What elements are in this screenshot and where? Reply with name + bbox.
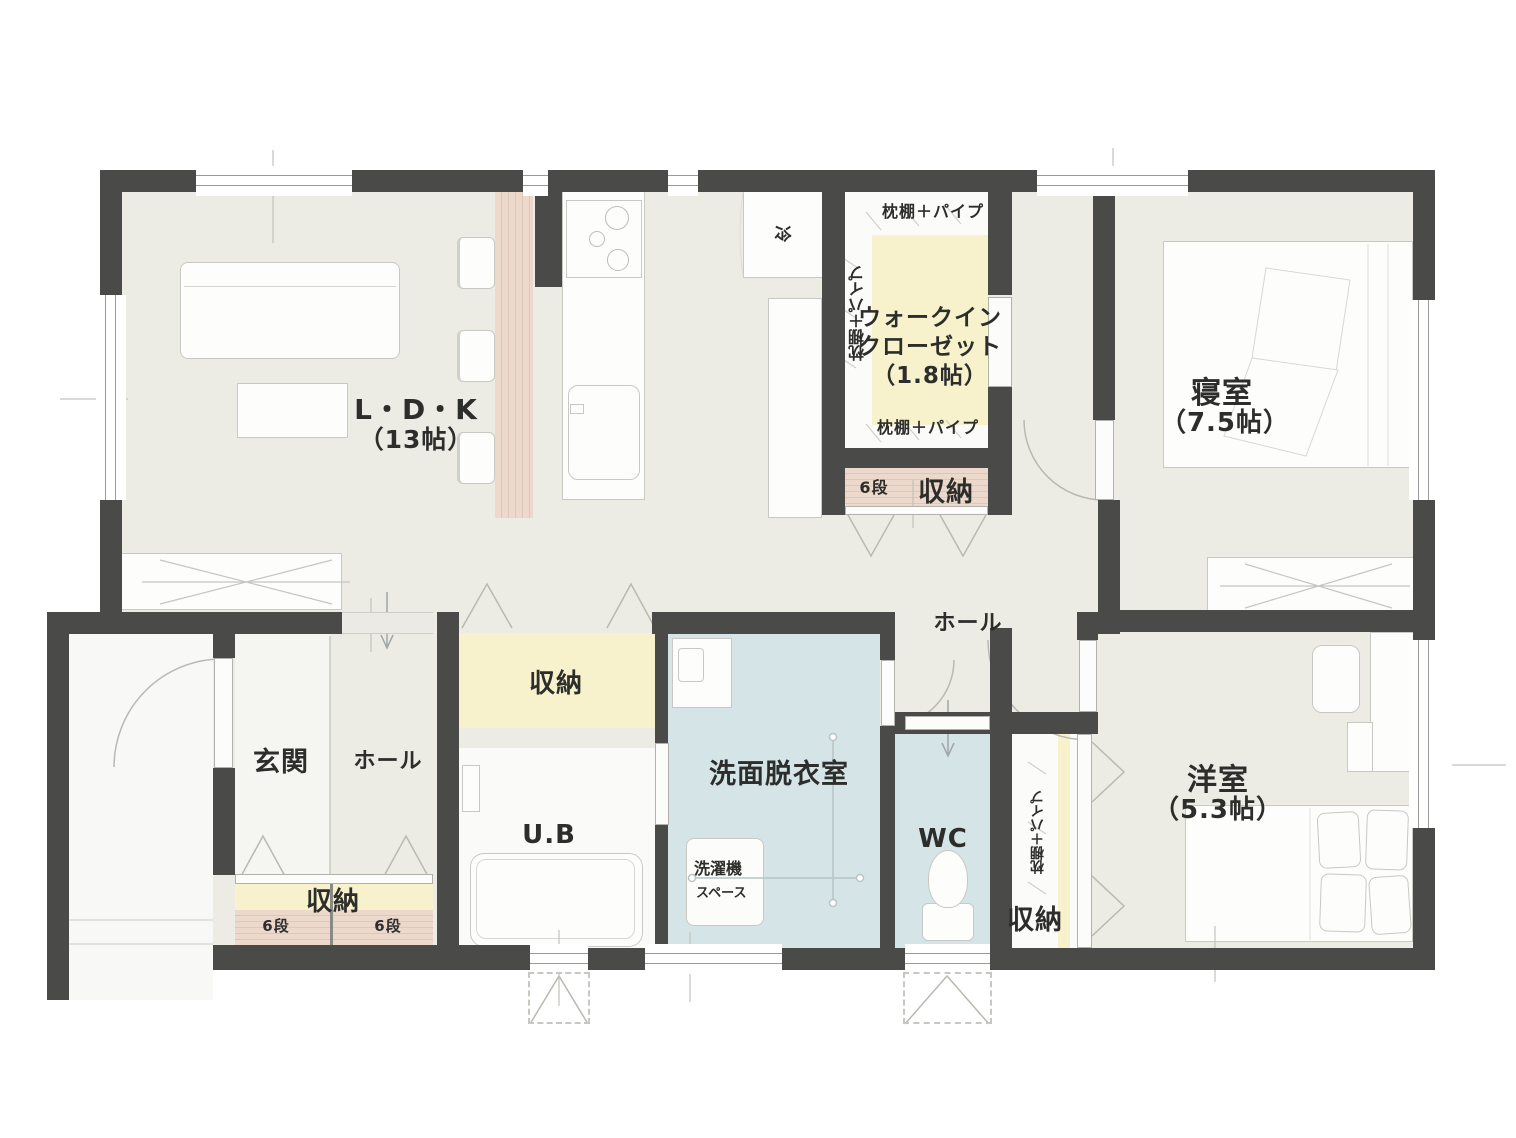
tv-board: [120, 553, 342, 610]
kitchen-sink: [568, 385, 640, 480]
wall: [47, 612, 342, 634]
wall: [437, 612, 459, 945]
wic-lower-storage-label: 収納: [918, 470, 974, 509]
wall-wic-right: [988, 170, 1012, 295]
room-size-ldk: （13帖）: [359, 420, 474, 456]
floor-plan: L・D・K （13帖） 寝室 （7.5帖） 洋室 （5.3帖） ウォークイン ク…: [0, 0, 1516, 1138]
window: [1409, 640, 1439, 828]
dining-table: [237, 383, 348, 438]
window: [196, 166, 352, 196]
western-closet-label: 収納: [1007, 898, 1063, 937]
laundry-space-label-line1: 洗濯機: [694, 855, 742, 879]
stove-burner: [607, 249, 629, 271]
wic-shelf-bottom-label: 枕棚＋パイプ: [877, 414, 979, 438]
stove-burner: [605, 206, 629, 230]
washroom-door: [881, 660, 895, 726]
room-label-entrance-hall: ホール: [353, 743, 422, 775]
wall: [655, 634, 668, 743]
wall-room-divider: [1098, 610, 1413, 632]
bed-blanket: [1368, 875, 1412, 936]
wall: [782, 948, 905, 970]
laundry-space-label-line2: スペース: [696, 882, 746, 901]
wall: [1413, 500, 1435, 640]
entrance-storage-steps-right: 6段: [374, 915, 401, 936]
wall: [1077, 712, 1098, 734]
wall: [880, 634, 895, 660]
window: [96, 295, 126, 500]
western-room-door: [1079, 640, 1097, 712]
ldk-hall-opening: [342, 612, 433, 634]
wic-shelf-top-label: 枕棚＋パイプ: [882, 198, 984, 222]
wic-shelf-left-label: 枕棚＋パイプ: [846, 265, 870, 361]
wall: [352, 170, 523, 192]
wall: [822, 448, 1012, 468]
wall-washroom-top: [652, 612, 895, 634]
fridge-label: 冷: [772, 226, 797, 244]
wall: [1413, 170, 1435, 300]
entrance-storage-label: 収納: [306, 881, 360, 918]
bed-blanket: [1319, 873, 1367, 933]
counter-stool: [457, 237, 495, 289]
wall: [1188, 170, 1435, 192]
window: [905, 944, 990, 974]
wall-bedroom-west: [1093, 192, 1115, 420]
western-side-shelf: [1347, 722, 1373, 772]
wall: [548, 170, 668, 192]
window: [1037, 166, 1188, 196]
entrance-door: [214, 658, 233, 768]
western-closet-shelf-label: 枕棚＋パイプ: [1028, 790, 1048, 874]
wall: [588, 948, 645, 970]
kitchen-bar-counter: [495, 187, 533, 518]
room-label-washroom: 洗面脱衣室: [709, 752, 849, 791]
vanity-basin: [678, 648, 704, 682]
toilet-bowl: [928, 850, 968, 908]
western-closet-doors: [1077, 734, 1092, 948]
window: [1409, 300, 1439, 500]
bedroom-door: [1095, 420, 1114, 500]
window: [668, 166, 698, 196]
wall: [1077, 612, 1098, 640]
sofa-back-line: [184, 286, 396, 287]
room-label-entrance: 玄関: [253, 740, 309, 779]
hall-storage-label: 収納: [529, 663, 583, 700]
wall: [990, 948, 1435, 970]
bath-counter: [462, 765, 480, 812]
room-size-western: （5.3帖）: [1153, 789, 1283, 826]
wall: [100, 170, 122, 295]
wall: [655, 825, 668, 948]
sofa: [180, 262, 400, 359]
wall: [213, 768, 235, 875]
sink-faucet: [570, 404, 584, 414]
wic-lower-storage-steps: 6段: [859, 474, 888, 498]
wall: [213, 945, 530, 970]
stove-burner: [589, 231, 605, 247]
bedroom-desk: [1207, 557, 1427, 612]
bathtub-inner: [476, 859, 635, 939]
wall: [213, 634, 235, 658]
window: [523, 166, 548, 196]
unit-bath-door: [655, 743, 669, 825]
window: [645, 944, 782, 974]
bed-pillow: [1365, 809, 1409, 870]
kitchen-back-counter: [768, 298, 822, 518]
room-size-bedroom: （7.5帖）: [1160, 402, 1290, 439]
room-label-hall: ホール: [933, 605, 1002, 637]
western-chair: [1312, 645, 1360, 713]
vent-window-box: [903, 972, 992, 1024]
wall: [880, 726, 895, 948]
bed-pillow: [1317, 811, 1362, 869]
room-label-wc: WC: [918, 824, 968, 854]
floor-porch: [69, 634, 213, 1000]
room-size-wic: （1.8帖）: [872, 356, 988, 390]
entrance-storage-steps-left: 6段: [262, 915, 289, 936]
toilet-tank: [922, 903, 974, 941]
wall-porch-left: [47, 612, 69, 1000]
wall: [698, 170, 1037, 192]
window: [530, 944, 588, 974]
wc-sliding-door: [905, 716, 990, 730]
room-label-unit-bath: U.B: [522, 820, 576, 850]
vent-window-box: [528, 972, 590, 1024]
counter-stool: [457, 330, 495, 382]
